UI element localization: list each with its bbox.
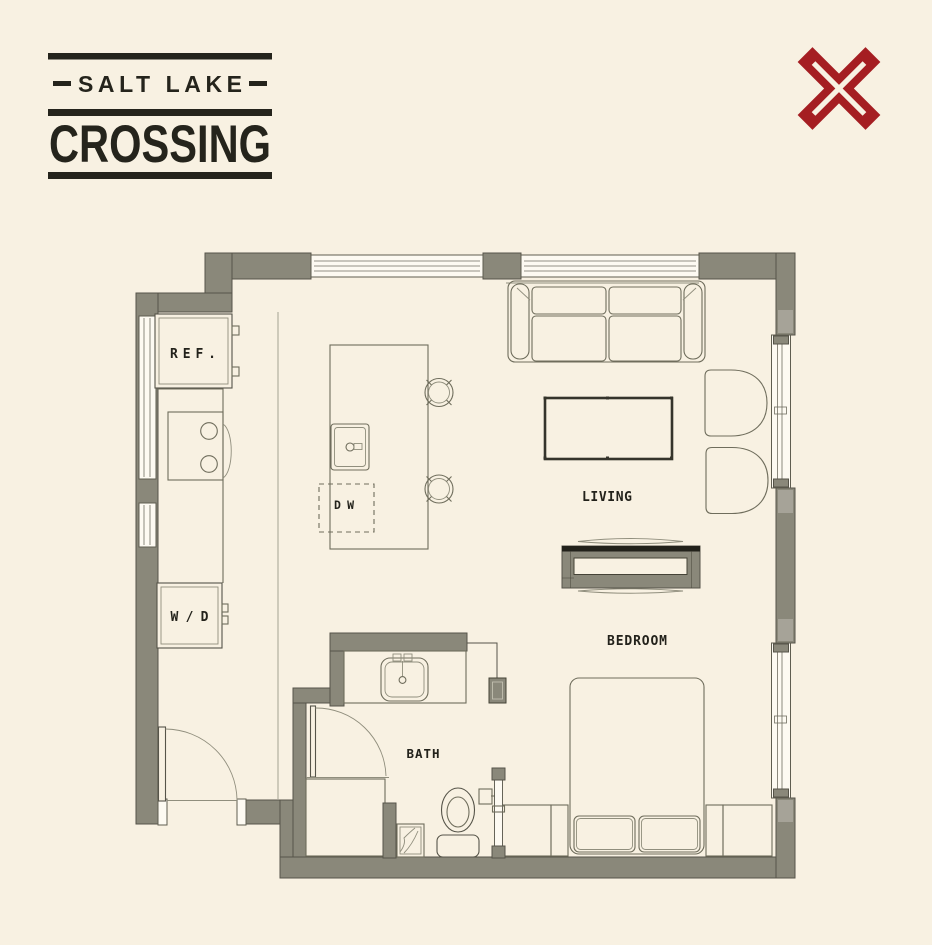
bath-label: BATH	[407, 746, 440, 761]
bedroom-label: BEDROOM	[607, 634, 667, 649]
window-top-1	[311, 255, 483, 277]
closet-wall-stub	[383, 803, 396, 858]
wall-topleft-step-vertical	[205, 253, 232, 298]
media-console	[562, 539, 700, 594]
brand-logo: SALT LAKE CROSSING	[48, 53, 272, 179]
logo-line1: SALT LAKE	[78, 71, 242, 97]
washer-dryer-label: W/D	[171, 610, 209, 625]
window-right-living	[772, 335, 791, 488]
logo-bar-bottom	[48, 172, 272, 179]
wall-cap-light-3	[778, 619, 793, 641]
wall-cap-light-1	[778, 310, 793, 333]
window-left-1	[139, 316, 156, 479]
living-label: LIVING	[582, 490, 632, 505]
wall-bath-west	[293, 688, 306, 858]
window-top-2	[521, 255, 699, 277]
wall-bottom	[280, 857, 795, 878]
wall-bath-north	[330, 633, 467, 651]
bed-mattress	[570, 678, 704, 854]
logo-dash-left	[53, 81, 71, 86]
page: SALT LAKE CROSSING	[0, 0, 932, 945]
console-top-edge	[562, 546, 700, 552]
logo-bar-top	[48, 53, 272, 60]
wall-cap-light-4	[778, 800, 793, 822]
refrigerator: REF.	[155, 314, 239, 388]
wall-cap-light-2	[778, 490, 793, 513]
window-left-2	[139, 503, 156, 547]
washer-dryer: W/D	[157, 583, 228, 648]
logo-dash-right	[249, 81, 267, 86]
logo-line2: CROSSING	[49, 115, 271, 174]
window-right-bedroom	[772, 643, 791, 798]
console-niche	[574, 558, 687, 575]
wall-top-mullion	[483, 253, 521, 279]
